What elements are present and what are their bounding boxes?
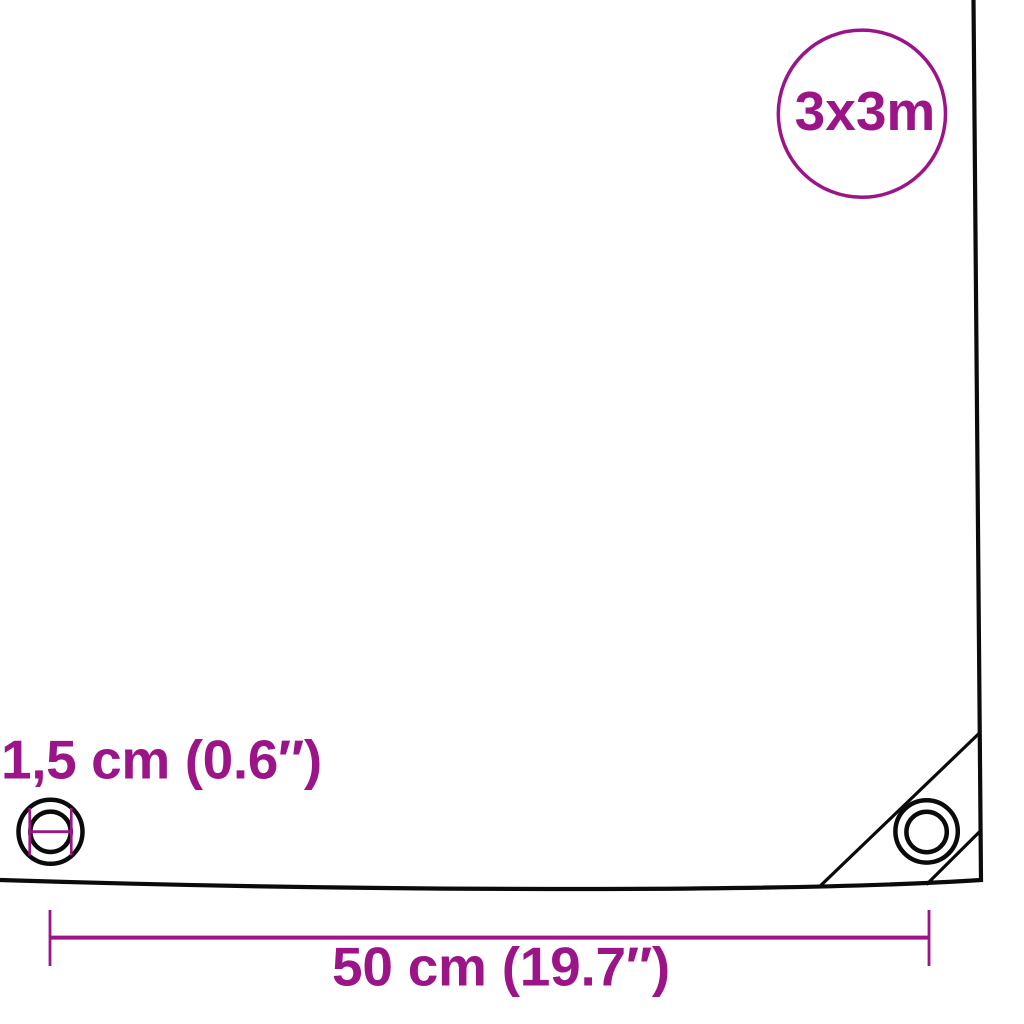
svg-text:50 cm (19.7″): 50 cm (19.7″) <box>332 936 670 998</box>
svg-text:3x3m: 3x3m <box>795 80 936 142</box>
svg-text:1,5 cm (0.6″): 1,5 cm (0.6″) <box>1 729 322 791</box>
